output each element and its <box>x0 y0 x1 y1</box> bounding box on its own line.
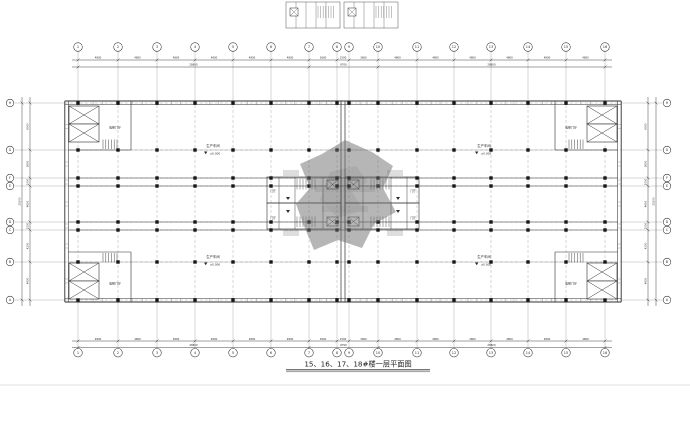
column-square <box>193 176 196 179</box>
column-square <box>155 220 158 223</box>
dim-text: 4800 <box>25 277 29 284</box>
elevation-marker <box>396 210 400 213</box>
column-square <box>452 148 455 151</box>
column-square <box>347 298 350 301</box>
dim-text: 3600 <box>360 56 367 60</box>
dim-text: 8700 <box>340 63 347 67</box>
column-square <box>307 260 310 263</box>
elevation-marker <box>286 210 290 213</box>
column-square <box>452 298 455 301</box>
dim-text: 4800 <box>544 56 551 60</box>
dim-text: 4800 <box>173 337 180 341</box>
dim-text: 1000 <box>643 178 647 185</box>
grid-bubble-label: 3 <box>156 351 158 355</box>
column-square <box>415 176 418 179</box>
workshop-label: 生产车间 <box>477 254 491 259</box>
column-square <box>335 298 338 301</box>
column-square <box>231 298 234 301</box>
dim-text: 4800 <box>95 337 102 341</box>
column-square <box>76 228 79 231</box>
column-square <box>564 148 567 151</box>
column-square <box>603 184 606 187</box>
column-square <box>526 298 529 301</box>
elevation-marker <box>475 152 478 155</box>
column-square <box>603 176 606 179</box>
grid-bubble-label: 11 <box>415 351 419 355</box>
grid-bubble-label: B <box>9 260 11 264</box>
column-square <box>415 148 418 151</box>
dim-text: 28800 <box>189 63 198 67</box>
grid-bubble-label: 13 <box>489 351 493 355</box>
corner-room-label: 电梯门厅 <box>565 124 577 129</box>
column-square <box>193 220 196 223</box>
column-square <box>603 260 606 263</box>
column-square <box>155 228 158 231</box>
elevation-marker <box>286 197 290 200</box>
column-square <box>269 184 272 187</box>
column-square <box>76 260 79 263</box>
column-square <box>603 101 606 104</box>
column-square <box>603 228 606 231</box>
column-square <box>335 260 338 263</box>
dim-text: 4800 <box>582 337 589 341</box>
column-square <box>564 298 567 301</box>
column-square <box>155 184 158 187</box>
dim-text: 28800 <box>189 343 198 347</box>
elevation-text: ±0.000 <box>210 151 221 155</box>
grid-bubble-label: E <box>666 184 668 188</box>
workshop-label: 生产车间 <box>477 143 491 148</box>
column-square <box>415 298 418 301</box>
column-square <box>415 101 418 104</box>
grid-bubble-label: 2 <box>117 351 119 355</box>
elevation-text: ±0.000 <box>481 151 492 155</box>
dim-text: 6000 <box>25 123 29 130</box>
grid-bubble-label: 1 <box>77 45 79 49</box>
watermark-shape <box>315 185 375 192</box>
dim-text: 4800 <box>211 56 218 60</box>
column-square <box>376 228 379 231</box>
dim-text: 4800 <box>287 337 294 341</box>
dim-text: 4800 <box>249 337 256 341</box>
column-square <box>193 228 196 231</box>
dim-text: 3600 <box>360 337 367 341</box>
grid-bubble-label: 8 <box>336 351 338 355</box>
column-square <box>116 176 119 179</box>
column-square <box>452 260 455 263</box>
grid-bubble-label: F <box>666 176 668 180</box>
core-lobby-label: 门厅 <box>410 189 416 193</box>
dim-text: 1000 <box>643 222 647 229</box>
dim-text: 4800 <box>506 56 513 60</box>
elevation-marker <box>204 263 207 266</box>
dim-text: 4800 <box>643 277 647 284</box>
column-square <box>231 148 234 151</box>
dim-text: 3600 <box>643 160 647 167</box>
grid-bubble-label: 1 <box>77 351 79 355</box>
column-square <box>269 220 272 223</box>
column-square <box>564 220 567 223</box>
dim-text: 1500 <box>340 337 347 341</box>
column-square <box>269 228 272 231</box>
grid-bubble-label: 7 <box>308 45 310 49</box>
column-square <box>564 176 567 179</box>
column-square <box>116 101 119 104</box>
dim-text: 4800 <box>394 56 401 60</box>
column-square <box>155 148 158 151</box>
column-square <box>76 184 79 187</box>
workshop-label: 生产车间 <box>206 143 220 148</box>
grid-bubble-label: B <box>666 260 668 264</box>
grid-bubble-label: 14 <box>526 351 531 355</box>
column-square <box>116 298 119 301</box>
column-square <box>564 228 567 231</box>
column-square <box>376 298 379 301</box>
column-square <box>376 260 379 263</box>
column-square <box>116 184 119 187</box>
dim-text: 4800 <box>544 337 551 341</box>
grid-bubble-label: E <box>9 184 11 188</box>
dim-text: 4800 <box>469 337 476 341</box>
column-square <box>489 101 492 104</box>
grid-bubble-label: 6 <box>270 45 272 49</box>
grid-bubble-label: 9 <box>348 351 350 355</box>
grid-bubble-label: 10 <box>376 351 380 355</box>
column-square <box>307 298 310 301</box>
column-square <box>269 298 272 301</box>
grid-bubble-label: 16 <box>603 351 607 355</box>
column-square <box>452 228 455 231</box>
dim-text: 4600 <box>25 200 29 207</box>
dim-text: 4800 <box>394 337 401 341</box>
column-square <box>489 176 492 179</box>
column-square <box>489 298 492 301</box>
elevation-text: ±0.000 <box>210 262 221 266</box>
grid-bubble-label: 5 <box>232 351 234 355</box>
core-lobby-label: 门厅 <box>270 189 276 193</box>
dim-text: 4800 <box>249 56 256 60</box>
dim-text: 4800 <box>134 56 141 60</box>
column-square <box>526 184 529 187</box>
column-square <box>335 101 338 104</box>
column-square <box>415 220 418 223</box>
column-square <box>526 148 529 151</box>
grid-bubble-label: 11 <box>415 45 419 49</box>
column-square <box>603 148 606 151</box>
dim-text: 4800 <box>211 337 218 341</box>
grid-bubble-label: 14 <box>526 45 531 49</box>
column-square <box>193 101 196 104</box>
column-square <box>489 184 492 187</box>
column-square <box>415 184 418 187</box>
column-square <box>564 184 567 187</box>
column-square <box>526 101 529 104</box>
dim-text: 1000 <box>25 178 29 185</box>
dim-text: 4800 <box>432 56 439 60</box>
grid-bubble-label: 3 <box>156 45 158 49</box>
dim-text: 4800 <box>173 56 180 60</box>
grid-bubble-label: 6 <box>270 351 272 355</box>
column-square <box>231 228 234 231</box>
column-square <box>193 260 196 263</box>
grid-bubble-label: 15 <box>564 45 568 49</box>
corner-room-label: 电梯门厅 <box>109 124 121 129</box>
grid-bubble-label: 16 <box>603 45 607 49</box>
elevation-marker <box>475 263 478 266</box>
column-square <box>603 298 606 301</box>
column-square <box>269 176 272 179</box>
column-square <box>269 148 272 151</box>
column-square <box>269 101 272 104</box>
core-lobby-label: 门厅 <box>270 216 276 220</box>
dim-text: 4800 <box>95 56 102 60</box>
column-square <box>231 220 234 223</box>
column-square <box>231 184 234 187</box>
column-square <box>564 101 567 104</box>
column-square <box>564 260 567 263</box>
column-square <box>231 176 234 179</box>
column-square <box>307 148 310 151</box>
column-square <box>193 184 196 187</box>
grid-bubble-label: 15 <box>564 351 568 355</box>
dim-text: 4200 <box>643 242 647 249</box>
watermark <box>296 140 396 250</box>
column-square <box>193 148 196 151</box>
dim-text: 3600 <box>320 337 327 341</box>
grid-bubble-label: 9 <box>348 45 350 49</box>
column-square <box>489 228 492 231</box>
column-square <box>376 101 379 104</box>
corner-room-label: 电梯门厅 <box>565 280 577 285</box>
column-square <box>155 101 158 104</box>
dim-text: 4600 <box>643 200 647 207</box>
column-square <box>155 260 158 263</box>
dim-text: 6000 <box>643 123 647 130</box>
dim-text: 4800 <box>469 56 476 60</box>
dim-text: 4200 <box>25 242 29 249</box>
column-square <box>269 260 272 263</box>
grid-bubble-label: 12 <box>452 45 456 49</box>
column-square <box>231 260 234 263</box>
column-square <box>452 220 455 223</box>
dim-text: 28800 <box>487 63 496 67</box>
column-square <box>526 260 529 263</box>
column-square <box>452 101 455 104</box>
watermark-shape <box>322 206 368 212</box>
column-square <box>116 220 119 223</box>
dim-text: 28800 <box>487 343 496 347</box>
column-square <box>116 260 119 263</box>
workshop-label: 生产车间 <box>206 254 220 259</box>
grid-bubble-label: 2 <box>117 45 119 49</box>
column-square <box>452 184 455 187</box>
grid-bubble-label: 12 <box>452 351 456 355</box>
column-square <box>526 176 529 179</box>
column-square <box>376 148 379 151</box>
dim-text: 3600 <box>320 56 327 60</box>
dim-text: 8700 <box>340 343 347 347</box>
dim-text: 4800 <box>432 337 439 341</box>
column-square <box>155 298 158 301</box>
dim-text: 25200 <box>651 197 655 206</box>
column-square <box>155 176 158 179</box>
dim-text: 1000 <box>25 222 29 229</box>
column-square <box>76 101 79 104</box>
dim-text: 4800 <box>582 56 589 60</box>
column-square <box>76 176 79 179</box>
corner-room-label: 电梯门厅 <box>109 280 121 285</box>
dim-text: 1500 <box>340 56 347 60</box>
column-square <box>347 260 350 263</box>
column-square <box>231 101 234 104</box>
column-square <box>307 101 310 104</box>
column-square <box>415 260 418 263</box>
elevation-text: ±0.000 <box>481 262 492 266</box>
grid-bubble-label: F <box>9 176 11 180</box>
column-square <box>76 298 79 301</box>
dim-text: 4800 <box>506 337 513 341</box>
grid-bubble-label: 13 <box>489 45 493 49</box>
column-square <box>76 220 79 223</box>
column-square <box>116 148 119 151</box>
column-square <box>193 298 196 301</box>
dim-text: 4800 <box>134 337 141 341</box>
watermark-layer <box>296 140 396 250</box>
grid-bubble-label: 5 <box>232 45 234 49</box>
column-square <box>489 220 492 223</box>
elevation-marker <box>396 197 400 200</box>
dim-text: 3600 <box>25 160 29 167</box>
column-square <box>526 228 529 231</box>
elevation-marker <box>204 152 207 155</box>
column-square <box>526 220 529 223</box>
column-square <box>415 228 418 231</box>
column-square <box>603 220 606 223</box>
column-square <box>452 176 455 179</box>
grid-bubble-label: 8 <box>336 45 338 49</box>
column-square <box>76 148 79 151</box>
dim-text: 25200 <box>17 197 21 206</box>
floor-plan-drawing: 电梯门厅电梯门厅电梯门厅电梯门厅门厅门厅门厅门厅 480048004800480… <box>0 0 690 426</box>
drawing-sheet: 电梯门厅电梯门厅电梯门厅电梯门厅门厅门厅门厅门厅 480048004800480… <box>0 0 690 426</box>
grid-bubble-label: 10 <box>376 45 380 49</box>
column-square <box>116 228 119 231</box>
dim-text: 4800 <box>287 56 294 60</box>
grid-bubble-label: 7 <box>308 351 310 355</box>
core-lobby-label: 门厅 <box>410 216 416 220</box>
drawing-title: 15、16、17、18#楼一层平面图 <box>304 360 411 369</box>
column-square <box>347 101 350 104</box>
